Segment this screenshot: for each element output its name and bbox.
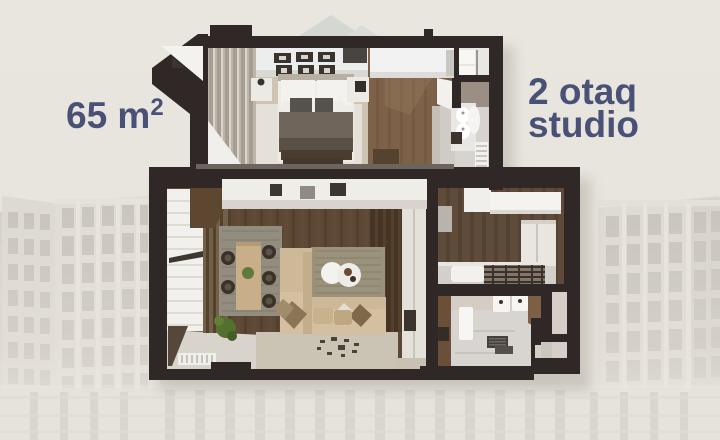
svg-text:studio: studio (528, 104, 639, 145)
svg-text:65 m2: 65 m2 (66, 94, 164, 136)
